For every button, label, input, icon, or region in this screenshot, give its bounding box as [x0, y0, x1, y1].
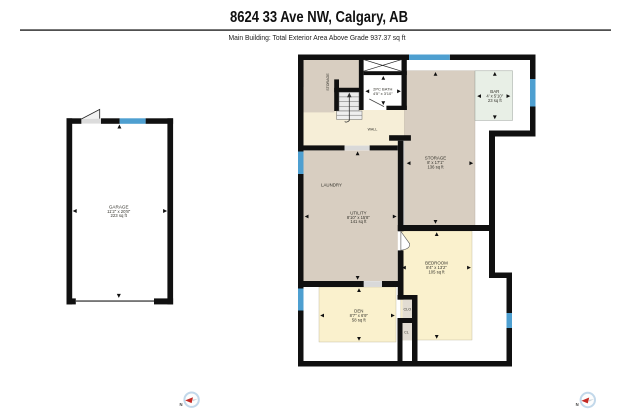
svg-text:WALL: WALL	[368, 128, 378, 132]
svg-text:58 sq ft: 58 sq ft	[352, 317, 367, 322]
svg-text:105 sq ft: 105 sq ft	[428, 269, 445, 274]
svg-text:CLO: CLO	[404, 307, 412, 311]
svg-text:141 sq ft: 141 sq ft	[350, 219, 367, 224]
svg-text:N: N	[576, 402, 579, 407]
svg-text:N: N	[179, 402, 182, 407]
svg-text:8624 33 Ave NW, Calgary, AB: 8624 33 Ave NW, Calgary, AB	[230, 9, 408, 26]
svg-text:LAUNDRY: LAUNDRY	[321, 182, 342, 187]
svg-text:4'5" x 3'10": 4'5" x 3'10"	[373, 91, 393, 96]
svg-text:23 sq ft: 23 sq ft	[488, 98, 503, 103]
svg-text:136 sq ft: 136 sq ft	[427, 164, 444, 169]
svg-text:STORAGE: STORAGE	[326, 73, 330, 91]
svg-text:Main Building: Total Exterior: Main Building: Total Exterior Area Above…	[229, 33, 406, 42]
svg-text:223 sq ft: 223 sq ft	[110, 213, 127, 218]
svg-text:CL: CL	[404, 330, 409, 334]
